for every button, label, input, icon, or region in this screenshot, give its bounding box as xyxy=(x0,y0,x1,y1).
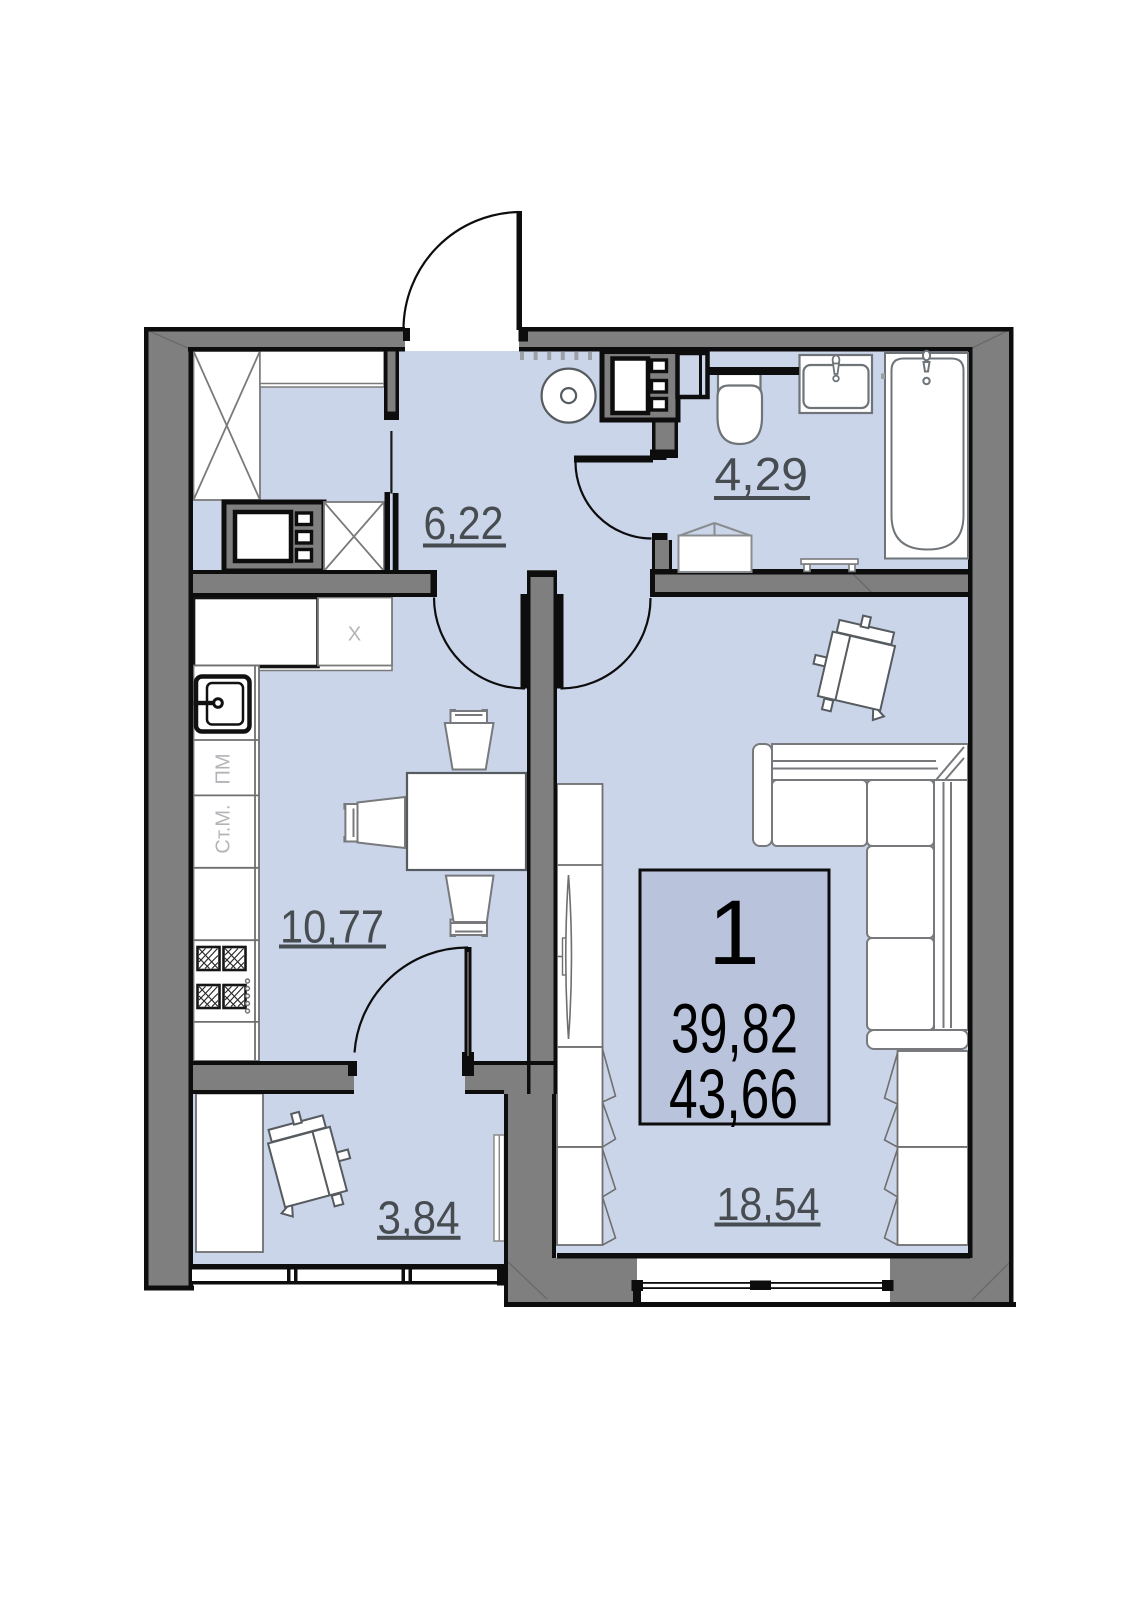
svg-text:6,22: 6,22 xyxy=(424,497,504,549)
svg-text:Ст.М.: Ст.М. xyxy=(213,804,235,853)
svg-text:3,84: 3,84 xyxy=(378,1192,460,1244)
svg-text:4,29: 4,29 xyxy=(715,448,809,500)
svg-text:43,66: 43,66 xyxy=(669,1055,798,1133)
svg-text:18,54: 18,54 xyxy=(717,1178,820,1230)
svg-text:1: 1 xyxy=(708,882,759,984)
svg-text:X: X xyxy=(348,624,361,646)
svg-text:ПМ: ПМ xyxy=(213,753,235,784)
